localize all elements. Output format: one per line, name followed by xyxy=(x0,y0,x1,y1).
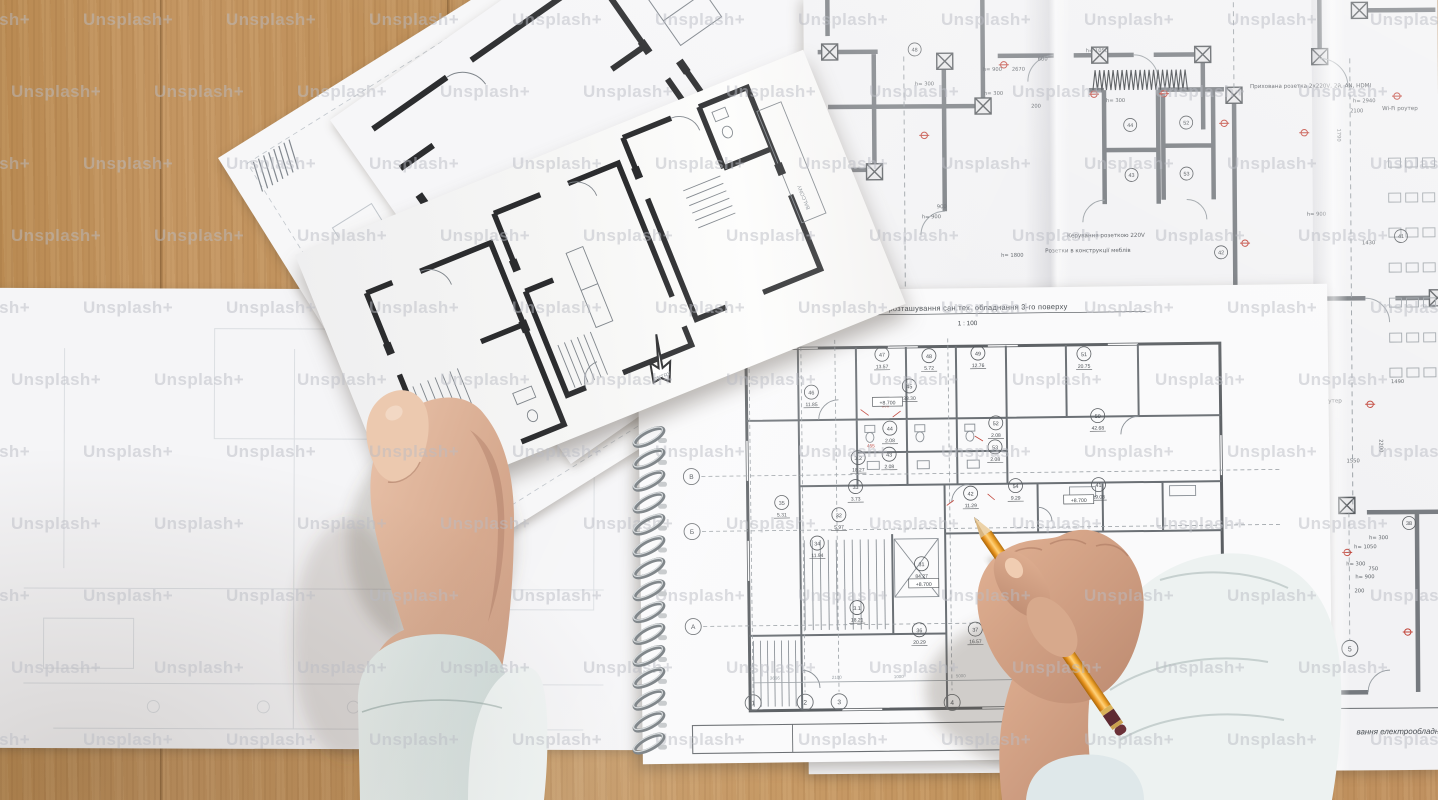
spiral-coil xyxy=(631,686,667,712)
photo-architect-desk: h= 9002670h= 300200600h= 1050h= 1800h= 9… xyxy=(0,0,1438,800)
spiral-coil xyxy=(631,708,667,734)
spiral-binding xyxy=(0,0,1438,800)
spiral-coil xyxy=(631,555,667,581)
spiral-coil xyxy=(631,511,667,537)
spiral-coil xyxy=(631,665,667,691)
spiral-coil xyxy=(631,446,667,472)
spiral-coil xyxy=(631,643,667,669)
spiral-coil xyxy=(631,577,667,603)
spiral-coil xyxy=(631,467,667,493)
spiral-coil xyxy=(631,621,667,647)
spiral-coil xyxy=(631,424,667,450)
spiral-coil xyxy=(631,599,667,625)
spiral-coil xyxy=(631,533,667,559)
spiral-coil xyxy=(631,730,667,756)
spiral-coil xyxy=(631,489,667,515)
